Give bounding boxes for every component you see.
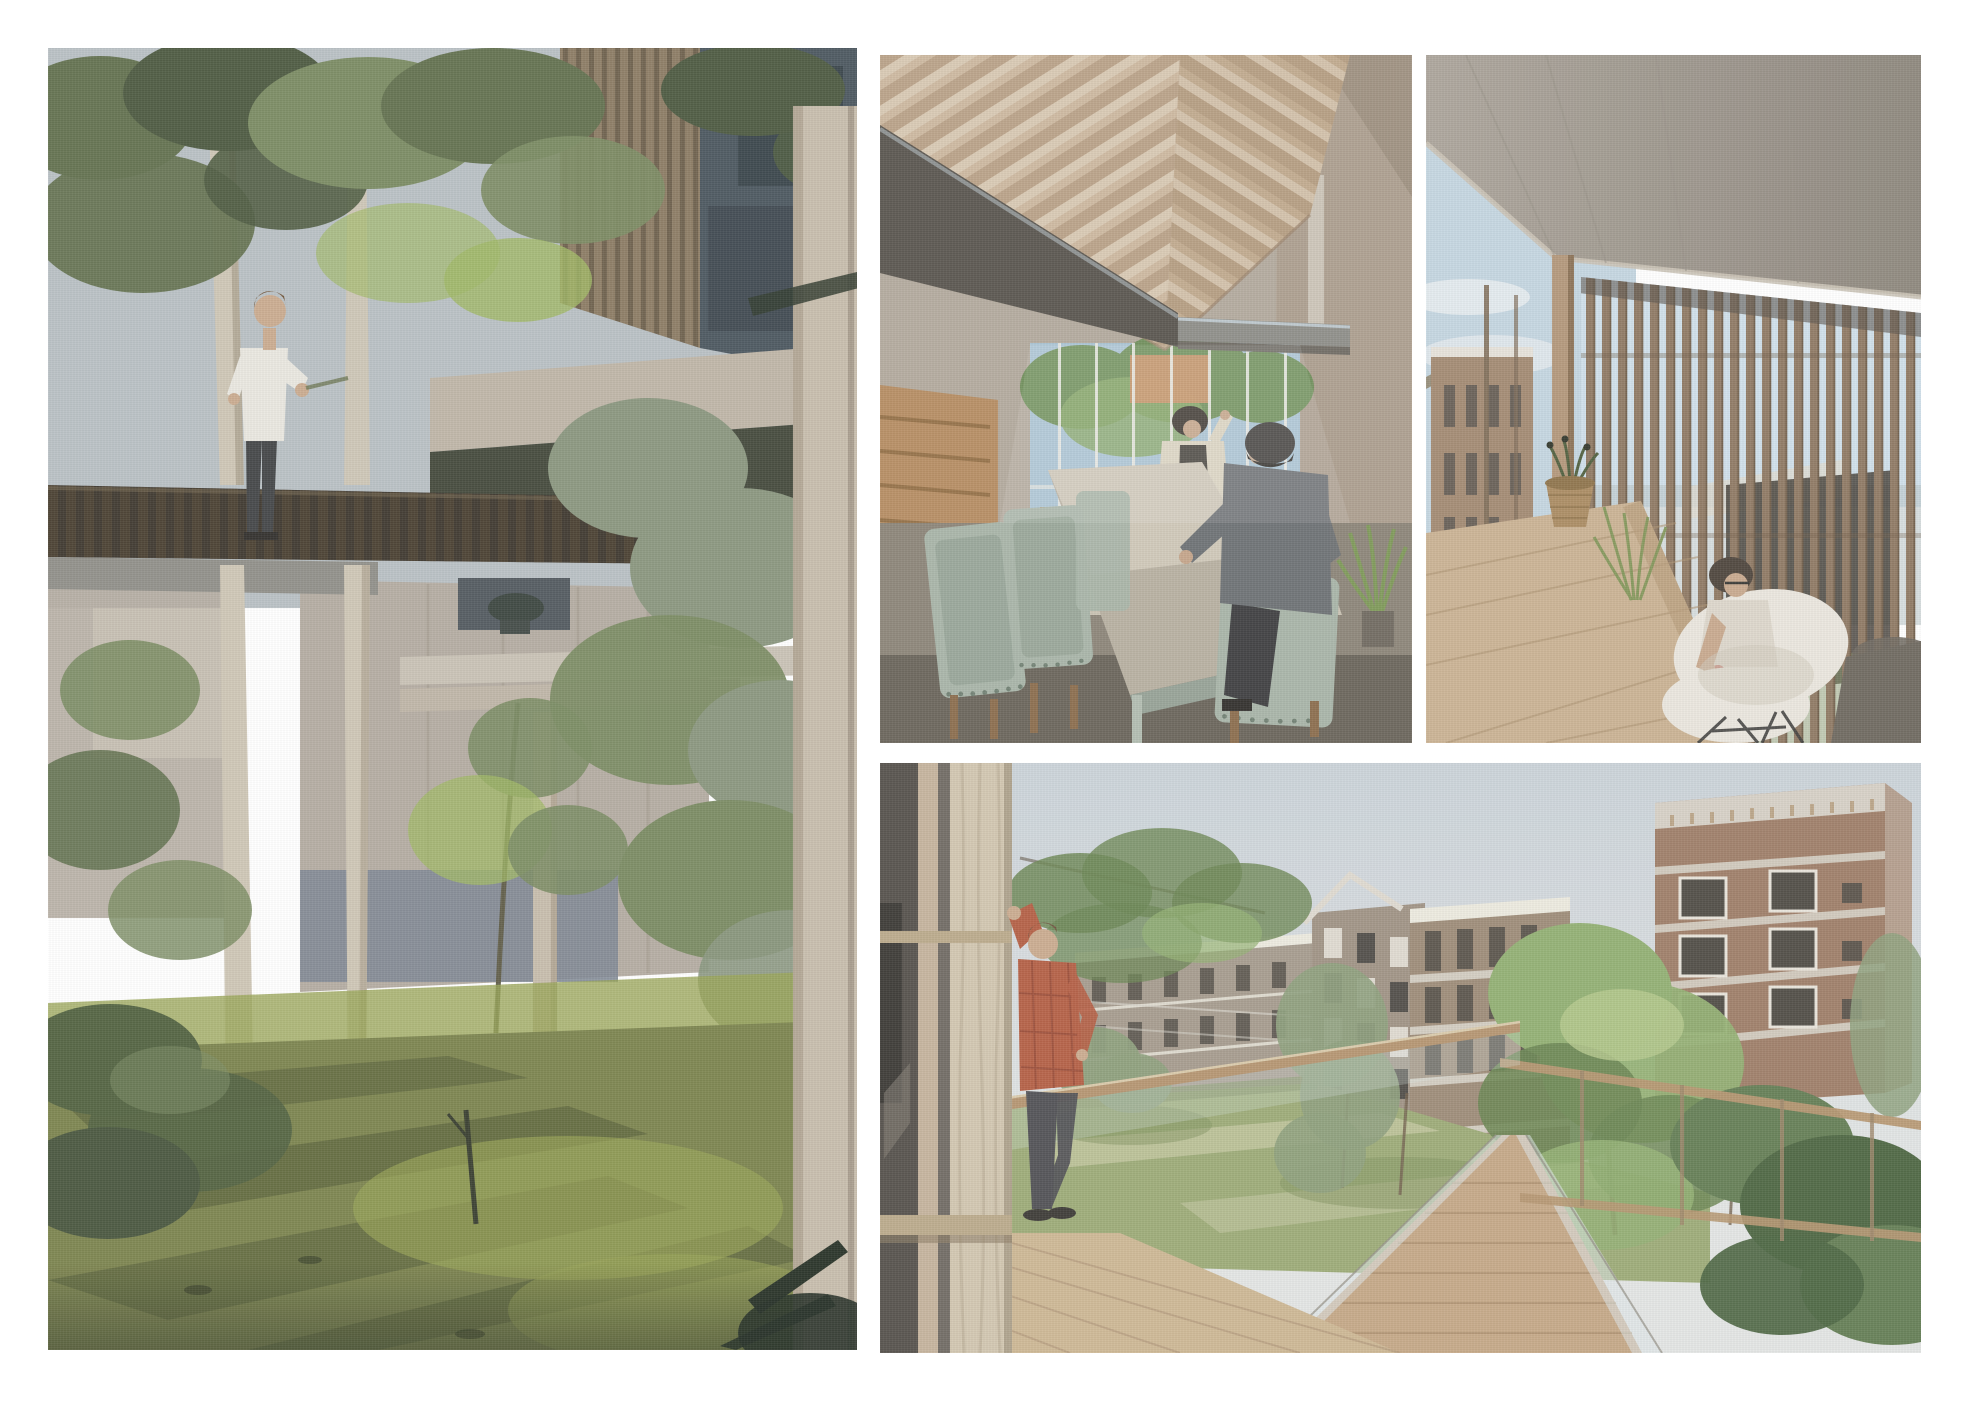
collage-sheet: [0, 0, 1972, 1405]
panel-courtyard-view-render: [880, 763, 1921, 1353]
panel-terrace-render: [1426, 55, 1921, 743]
panel-garden-walkway-render: [48, 48, 857, 1350]
panel-dining-hall-render: [880, 55, 1412, 743]
